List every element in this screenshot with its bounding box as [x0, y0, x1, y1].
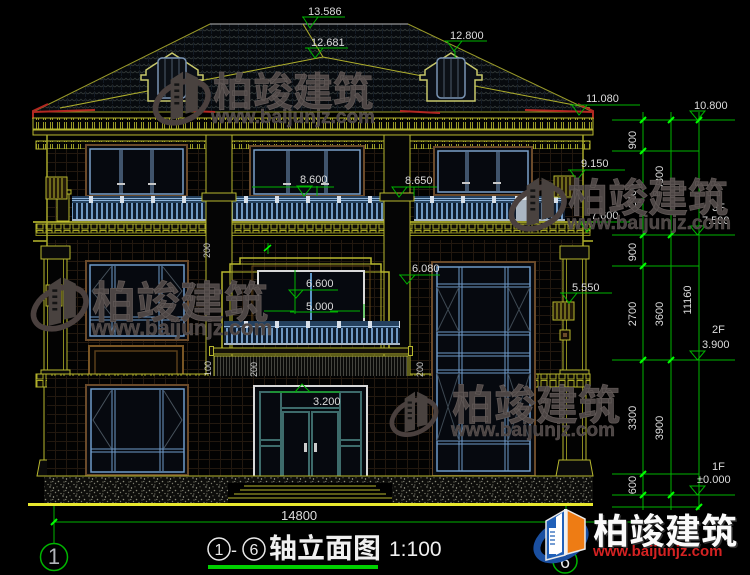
svg-text:10.800: 10.800	[694, 100, 728, 112]
svg-text:3600: 3600	[654, 302, 666, 326]
svg-text:11160: 11160	[682, 286, 694, 315]
svg-text:3.200: 3.200	[313, 396, 341, 408]
svg-text:9.150: 9.150	[581, 158, 609, 170]
svg-text:1: 1	[215, 542, 224, 559]
svg-text:5.000: 5.000	[306, 301, 334, 313]
svg-text:900: 900	[627, 131, 639, 149]
svg-text:www.baijunjz.com: www.baijunjz.com	[90, 317, 272, 340]
svg-text:200: 200	[415, 362, 425, 377]
svg-text:www.baijunjz.com: www.baijunjz.com	[450, 420, 615, 441]
svg-text:8.650: 8.650	[405, 175, 433, 187]
svg-text:200: 200	[202, 243, 212, 258]
svg-text:-: -	[231, 540, 237, 560]
svg-text:3900: 3900	[654, 416, 666, 440]
svg-text:2700: 2700	[627, 302, 639, 326]
svg-text:www.baijunjz.com: www.baijunjz.com	[210, 107, 375, 128]
svg-text:1: 1	[48, 544, 60, 569]
svg-text:www.baijunjz.com: www.baijunjz.com	[566, 213, 731, 234]
svg-text:11.080: 11.080	[586, 93, 619, 105]
svg-text:5.550: 5.550	[572, 282, 600, 294]
svg-text:6: 6	[250, 542, 259, 559]
svg-text:13.586: 13.586	[308, 6, 342, 18]
svg-text:3300: 3300	[627, 406, 639, 430]
svg-text:www.baijunjz.com: www.baijunjz.com	[592, 543, 722, 560]
svg-text:±0.000: ±0.000	[697, 474, 731, 486]
svg-text:200: 200	[249, 362, 259, 377]
svg-text:14800: 14800	[281, 508, 317, 523]
svg-text:2F: 2F	[712, 324, 725, 336]
svg-text:1F: 1F	[712, 461, 725, 473]
svg-text:600: 600	[627, 476, 639, 494]
svg-text:1:100: 1:100	[389, 538, 442, 561]
svg-text:3.900: 3.900	[702, 339, 730, 351]
svg-text:12.681: 12.681	[311, 37, 345, 49]
svg-text:8.600: 8.600	[300, 174, 328, 186]
svg-text:100: 100	[203, 361, 213, 376]
svg-text:900: 900	[627, 243, 639, 261]
svg-text:12.800: 12.800	[450, 30, 484, 42]
svg-text:6.600: 6.600	[306, 278, 334, 290]
svg-text:6.080: 6.080	[412, 263, 440, 275]
